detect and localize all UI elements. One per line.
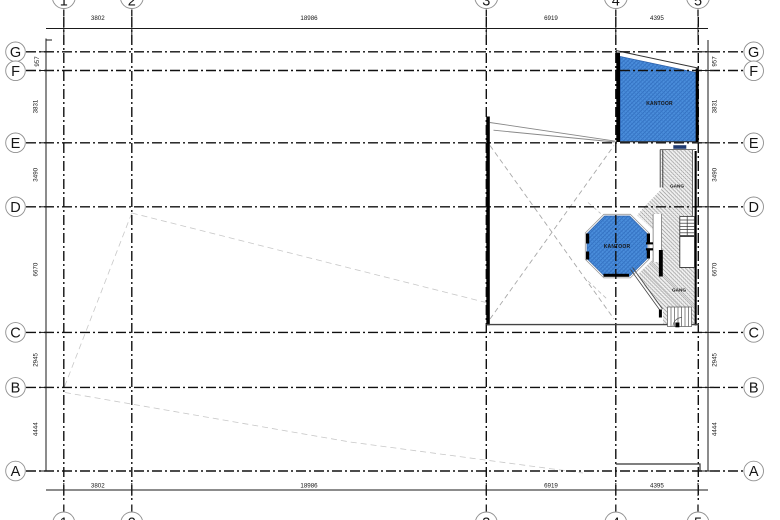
svg-text:B: B — [749, 380, 759, 396]
svg-text:A: A — [749, 464, 759, 480]
svg-text:KANTOOR: KANTOOR — [646, 101, 673, 107]
svg-text:E: E — [11, 136, 21, 152]
svg-text:3: 3 — [482, 0, 490, 10]
svg-text:A: A — [11, 464, 21, 480]
svg-text:18986: 18986 — [300, 482, 318, 489]
svg-text:957: 957 — [34, 56, 41, 67]
svg-text:KANTOOR: KANTOOR — [604, 244, 631, 250]
svg-text:18986: 18986 — [300, 15, 318, 22]
svg-text:1: 1 — [60, 516, 68, 520]
svg-text:G: G — [10, 45, 21, 61]
svg-text:1: 1 — [60, 0, 68, 10]
svg-text:3802: 3802 — [91, 482, 105, 489]
svg-text:6919: 6919 — [544, 482, 558, 489]
svg-text:4395: 4395 — [650, 482, 664, 489]
svg-text:3490: 3490 — [712, 167, 719, 181]
svg-text:4444: 4444 — [33, 422, 40, 436]
svg-text:5: 5 — [694, 0, 702, 10]
svg-text:3831: 3831 — [712, 99, 719, 113]
svg-text:GANG: GANG — [670, 183, 684, 188]
svg-text:2945: 2945 — [33, 352, 40, 366]
svg-text:3831: 3831 — [33, 99, 40, 113]
svg-text:957: 957 — [712, 56, 719, 67]
svg-text:3802: 3802 — [91, 15, 105, 22]
svg-text:4: 4 — [612, 0, 620, 10]
svg-text:3490: 3490 — [33, 167, 40, 181]
svg-text:D: D — [748, 200, 758, 216]
svg-text:B: B — [11, 380, 21, 396]
svg-text:C: C — [748, 325, 758, 341]
svg-text:4444: 4444 — [712, 422, 719, 436]
svg-text:F: F — [11, 64, 20, 80]
svg-text:E: E — [749, 136, 759, 152]
svg-text:4395: 4395 — [650, 15, 664, 22]
svg-text:3: 3 — [482, 516, 490, 520]
svg-text:6919: 6919 — [544, 15, 558, 22]
svg-text:F: F — [749, 64, 758, 80]
svg-text:2945: 2945 — [712, 352, 719, 366]
svg-text:2: 2 — [128, 516, 136, 520]
svg-text:2: 2 — [128, 0, 136, 10]
svg-text:4: 4 — [612, 516, 620, 520]
svg-text:6670: 6670 — [712, 262, 719, 276]
svg-text:D: D — [10, 200, 20, 216]
svg-text:5: 5 — [694, 516, 702, 520]
svg-text:C: C — [10, 325, 20, 341]
svg-text:G: G — [748, 45, 759, 61]
svg-text:GANG: GANG — [672, 287, 686, 292]
svg-text:6670: 6670 — [33, 262, 40, 276]
